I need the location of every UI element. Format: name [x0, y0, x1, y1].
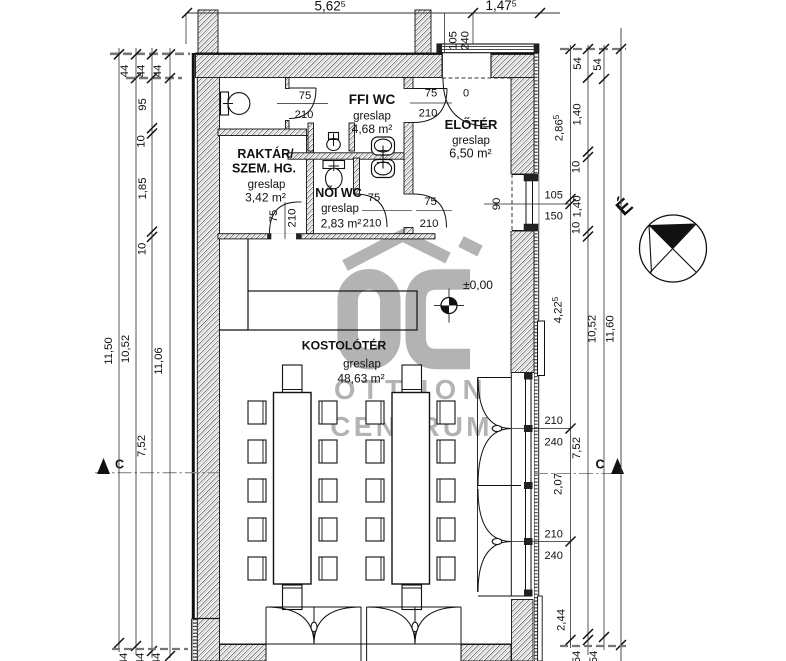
svg-text:±0,00: ±0,00 [463, 278, 493, 292]
svg-text:150: 150 [545, 211, 563, 223]
svg-text:greslap: greslap [321, 203, 359, 215]
svg-text:greslap: greslap [343, 359, 381, 371]
svg-text:210: 210 [287, 209, 299, 228]
svg-text:240: 240 [545, 437, 563, 449]
svg-text:FFI WC: FFI WC [349, 92, 396, 107]
svg-text:44: 44 [119, 65, 131, 78]
svg-text:10,52: 10,52 [587, 315, 599, 343]
svg-text:0: 0 [463, 88, 469, 100]
svg-text:1,40: 1,40 [572, 196, 584, 218]
svg-text:210: 210 [545, 529, 563, 541]
svg-text:240: 240 [545, 550, 563, 562]
svg-text:210: 210 [420, 218, 439, 230]
svg-text:75: 75 [368, 192, 381, 204]
svg-text:10,52: 10,52 [120, 335, 132, 363]
svg-text:greslap: greslap [353, 111, 391, 123]
svg-text:44: 44 [135, 653, 147, 661]
svg-text:7,52: 7,52 [136, 435, 148, 457]
svg-text:3,42 m²: 3,42 m² [245, 191, 286, 205]
svg-text:44: 44 [152, 65, 164, 78]
svg-text:4,68 m²: 4,68 m² [352, 122, 393, 136]
svg-text:6,50 m²: 6,50 m² [449, 147, 491, 161]
svg-text:10: 10 [136, 135, 148, 148]
svg-text:C: C [115, 458, 124, 472]
svg-text:11,60: 11,60 [605, 315, 617, 342]
svg-text:10: 10 [137, 243, 149, 256]
svg-text:95: 95 [137, 98, 149, 111]
svg-text:240: 240 [460, 31, 472, 50]
svg-text:90: 90 [491, 198, 503, 211]
svg-text:7,52: 7,52 [571, 437, 583, 459]
svg-text:2,83 m²: 2,83 m² [321, 217, 362, 231]
svg-text:1,40: 1,40 [572, 104, 584, 126]
svg-text:210: 210 [419, 108, 438, 120]
svg-text:75: 75 [425, 88, 438, 100]
svg-text:210: 210 [363, 218, 382, 230]
svg-text:75: 75 [299, 90, 312, 102]
svg-text:75: 75 [268, 210, 280, 223]
svg-text:44: 44 [118, 653, 130, 661]
svg-text:105: 105 [545, 190, 563, 202]
svg-text:54: 54 [592, 58, 604, 71]
svg-text:SZEM. HG.: SZEM. HG. [232, 162, 296, 176]
svg-text:greslap: greslap [452, 135, 490, 147]
svg-text:44: 44 [151, 653, 163, 661]
svg-text:NŐI WC: NŐI WC [315, 185, 362, 200]
svg-text:54: 54 [571, 651, 583, 661]
svg-text:210: 210 [545, 415, 563, 427]
svg-text:44: 44 [136, 65, 148, 78]
svg-text:C: C [595, 458, 604, 472]
svg-text:54: 54 [588, 651, 600, 661]
svg-text:11,50: 11,50 [103, 337, 115, 364]
svg-text:210: 210 [295, 109, 314, 121]
svg-text:2,44: 2,44 [556, 609, 568, 631]
svg-text:75: 75 [424, 196, 437, 208]
svg-text:105: 105 [448, 31, 460, 50]
svg-text:10: 10 [571, 161, 583, 174]
svg-text:11,06: 11,06 [153, 347, 165, 374]
svg-text:1,85: 1,85 [137, 178, 149, 200]
svg-text:RAKTÁR/: RAKTÁR/ [237, 146, 294, 161]
svg-text:54: 54 [572, 57, 584, 70]
svg-text:greslap: greslap [248, 179, 286, 191]
svg-text:KOSTOLÓTÉR: KOSTOLÓTÉR [302, 338, 387, 353]
svg-text:48,63 m²: 48,63 m² [337, 372, 384, 386]
svg-text:10: 10 [571, 222, 583, 235]
svg-text:2,07: 2,07 [553, 473, 565, 495]
svg-text:ELŐTÉR: ELŐTÉR [445, 117, 498, 132]
